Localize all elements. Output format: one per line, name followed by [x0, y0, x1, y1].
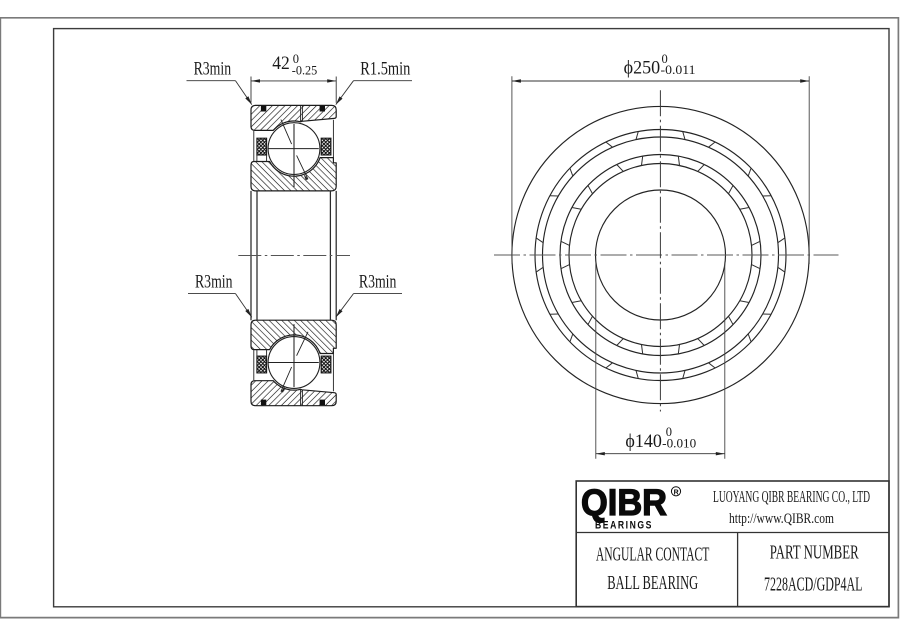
svg-text:R3min: R3min [194, 60, 232, 80]
svg-text:7228ACD/GDP4AL: 7228ACD/GDP4AL [764, 574, 863, 596]
svg-text:R3min: R3min [359, 272, 397, 292]
svg-text:BEARINGS: BEARINGS [595, 519, 653, 531]
svg-text:R: R [674, 489, 679, 496]
svg-text:R3min: R3min [195, 272, 233, 292]
svg-text:http://www.QIBR.com: http://www.QIBR.com [729, 511, 834, 527]
svg-text:-0.011: -0.011 [661, 63, 696, 77]
svg-text:-0.010: -0.010 [662, 437, 696, 451]
svg-text:QIBR: QIBR [581, 482, 667, 523]
svg-text:BALL BEARING: BALL BEARING [607, 572, 698, 594]
svg-text:42: 42 [272, 53, 290, 74]
svg-text:PART NUMBER: PART NUMBER [770, 542, 859, 564]
svg-text:ϕ140: ϕ140 [625, 431, 662, 452]
svg-text:LUOYANG QIBR BEARING CO., LTD: LUOYANG QIBR BEARING CO., LTD [713, 487, 870, 506]
svg-text:ϕ250: ϕ250 [624, 57, 661, 78]
svg-text:R1.5min: R1.5min [360, 60, 410, 80]
svg-text:ANGULAR CONTACT: ANGULAR CONTACT [596, 544, 710, 566]
svg-text:-0.25: -0.25 [292, 64, 318, 78]
